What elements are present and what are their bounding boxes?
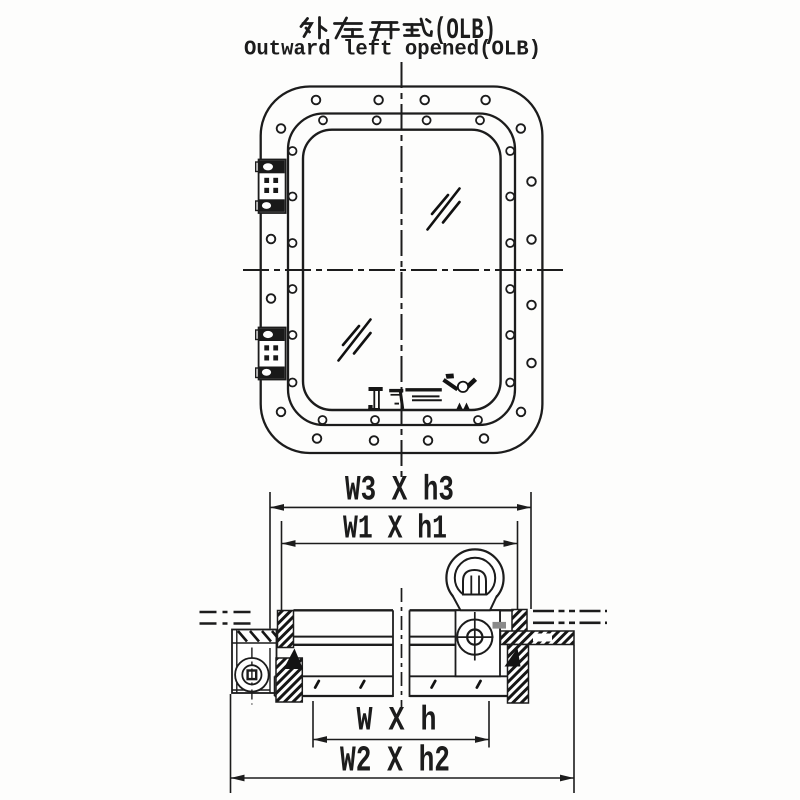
- svg-text:Outward left opened(OLB): Outward left opened(OLB): [244, 38, 541, 62]
- svg-text:W2 X h2: W2 X h2: [340, 741, 450, 782]
- svg-text:W3 X h3: W3 X h3: [345, 471, 454, 511]
- svg-text:W1 X h1: W1 X h1: [343, 511, 447, 548]
- svg-text:W X h: W X h: [357, 703, 437, 741]
